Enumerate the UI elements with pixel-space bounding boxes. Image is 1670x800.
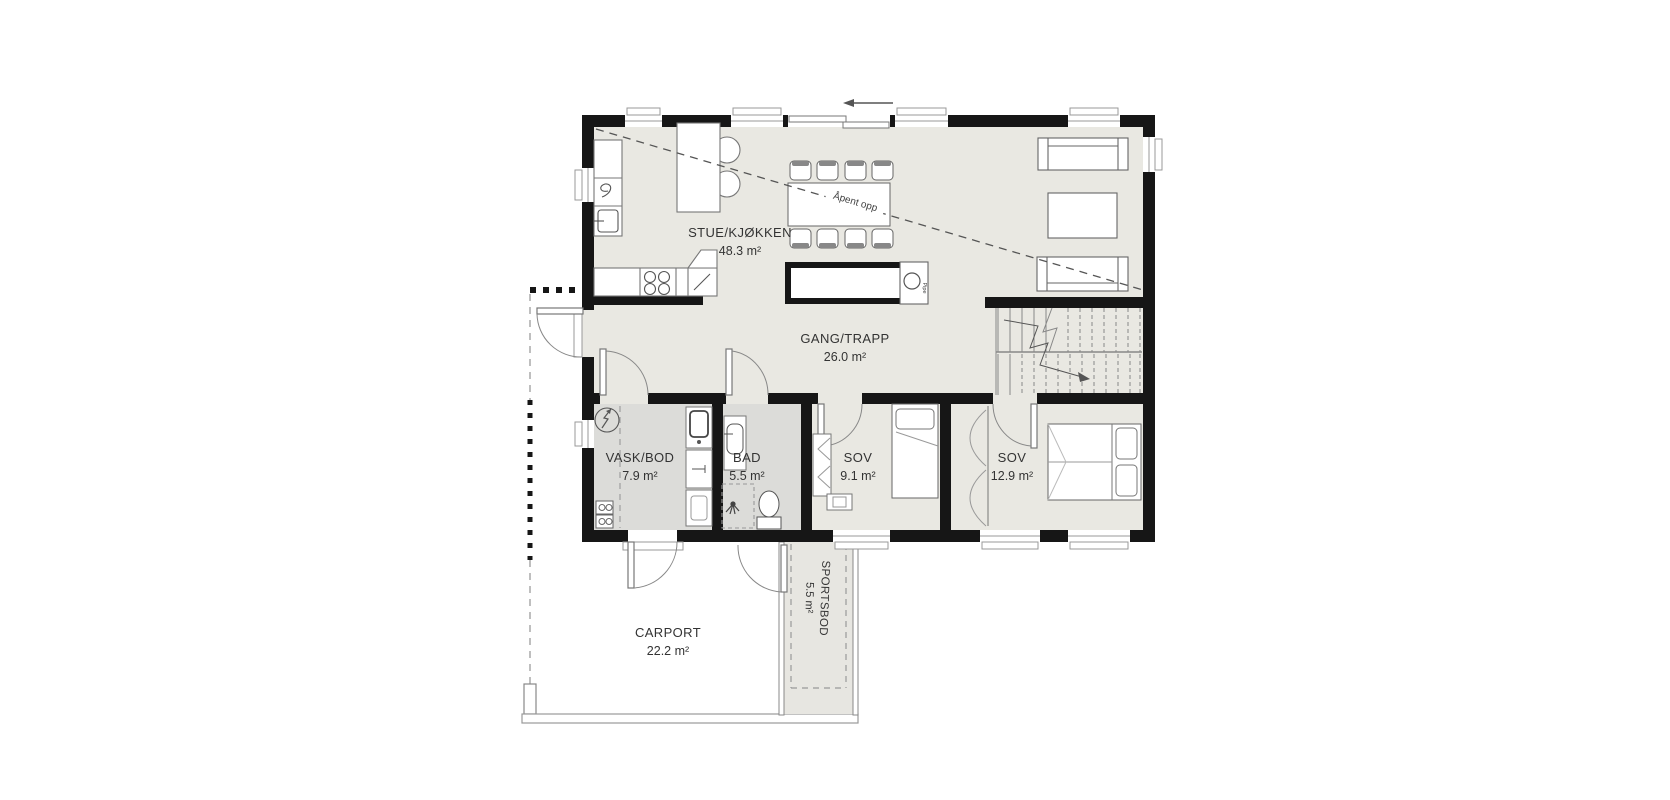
sov2-door-leaf (1031, 404, 1037, 448)
carport-entry-door (623, 530, 683, 588)
opening-vaskbod (600, 393, 648, 404)
chimney-label: Pipe (921, 282, 927, 293)
window-east-1 (1143, 137, 1162, 172)
living-room (1037, 138, 1128, 291)
entrance-door-leaf (537, 308, 583, 314)
wall-sov1-sov2 (940, 404, 951, 530)
svg-text:SOV: SOV (998, 450, 1027, 465)
wall-vaskbod-bad (712, 404, 723, 530)
svg-text:CARPORT: CARPORT (635, 625, 701, 640)
svg-text:VASK/BOD: VASK/BOD (606, 450, 675, 465)
bench-counter (791, 268, 900, 298)
sofa-bottom (1037, 257, 1128, 291)
window-north-4 (1068, 108, 1120, 127)
svg-text:STUE/KJØKKEN: STUE/KJØKKEN (688, 225, 792, 240)
svg-text:9.1 m²: 9.1 m² (840, 469, 875, 483)
window-west-kitchen (575, 168, 594, 202)
gang-bench: Pipe (785, 262, 928, 304)
opening-sov2 (993, 393, 1037, 404)
wall-bad-sov1 (801, 404, 812, 530)
sportsbod-door-leaf (781, 545, 787, 592)
toilet-tank-icon (757, 517, 781, 529)
terrace-edge (522, 714, 858, 723)
svg-text:5.5 m²: 5.5 m² (802, 582, 815, 614)
svg-text:22.2 m²: 22.2 m² (647, 644, 689, 658)
svg-text:BAD: BAD (733, 450, 761, 465)
svg-text:7.9 m²: 7.9 m² (622, 469, 657, 483)
floor-plan-page: Pipe (0, 0, 1670, 800)
wall-stair (985, 297, 1143, 308)
sliding-door (788, 99, 893, 128)
svg-text:5.5 m²: 5.5 m² (729, 469, 764, 483)
svg-text:SOV: SOV (844, 450, 873, 465)
window-north-1 (625, 108, 662, 127)
label-carport: CARPORT 22.2 m² (635, 625, 701, 658)
window-south-sov1 (833, 530, 890, 549)
window-south-sov2a (980, 530, 1040, 549)
sliding-direction-arrow-icon (843, 99, 854, 107)
pillow (1116, 428, 1137, 459)
sportsbod-wall-right (853, 542, 858, 715)
window-north-3 (895, 108, 948, 127)
floor-plan-drawing: Pipe (0, 0, 1670, 800)
wall-east (1143, 115, 1155, 542)
svg-text:12.9 m²: 12.9 m² (991, 469, 1033, 483)
sofa-top (1038, 138, 1128, 170)
window-south-sov2b (1068, 530, 1130, 549)
svg-text:48.3 m²: 48.3 m² (719, 244, 761, 258)
window-west-vaskbod (575, 420, 594, 448)
vaskbod-door-leaf (600, 349, 606, 395)
opening-sov1 (818, 393, 862, 404)
coffee-table (1048, 193, 1117, 238)
carport-entry-door-leaf (628, 542, 634, 588)
washer-dryer-icon (596, 501, 613, 528)
toilet-bowl-icon (759, 491, 779, 517)
pillow (1116, 465, 1137, 496)
bad-door-leaf (726, 349, 732, 395)
carport-post (524, 684, 536, 714)
wall-bedroom-corridor (582, 393, 1143, 404)
kitchen-counter-south (594, 268, 717, 296)
svg-text:GANG/TRAPP: GANG/TRAPP (800, 331, 889, 346)
kitchen-island (677, 123, 720, 212)
entrance-door (537, 308, 594, 357)
sportsbod-door-swing (738, 545, 781, 592)
laundry-cabinet (686, 490, 712, 526)
svg-text:26.0 m²: 26.0 m² (824, 350, 866, 364)
window-north-2 (731, 108, 783, 127)
nightstand (827, 494, 852, 510)
pillow (896, 409, 934, 429)
